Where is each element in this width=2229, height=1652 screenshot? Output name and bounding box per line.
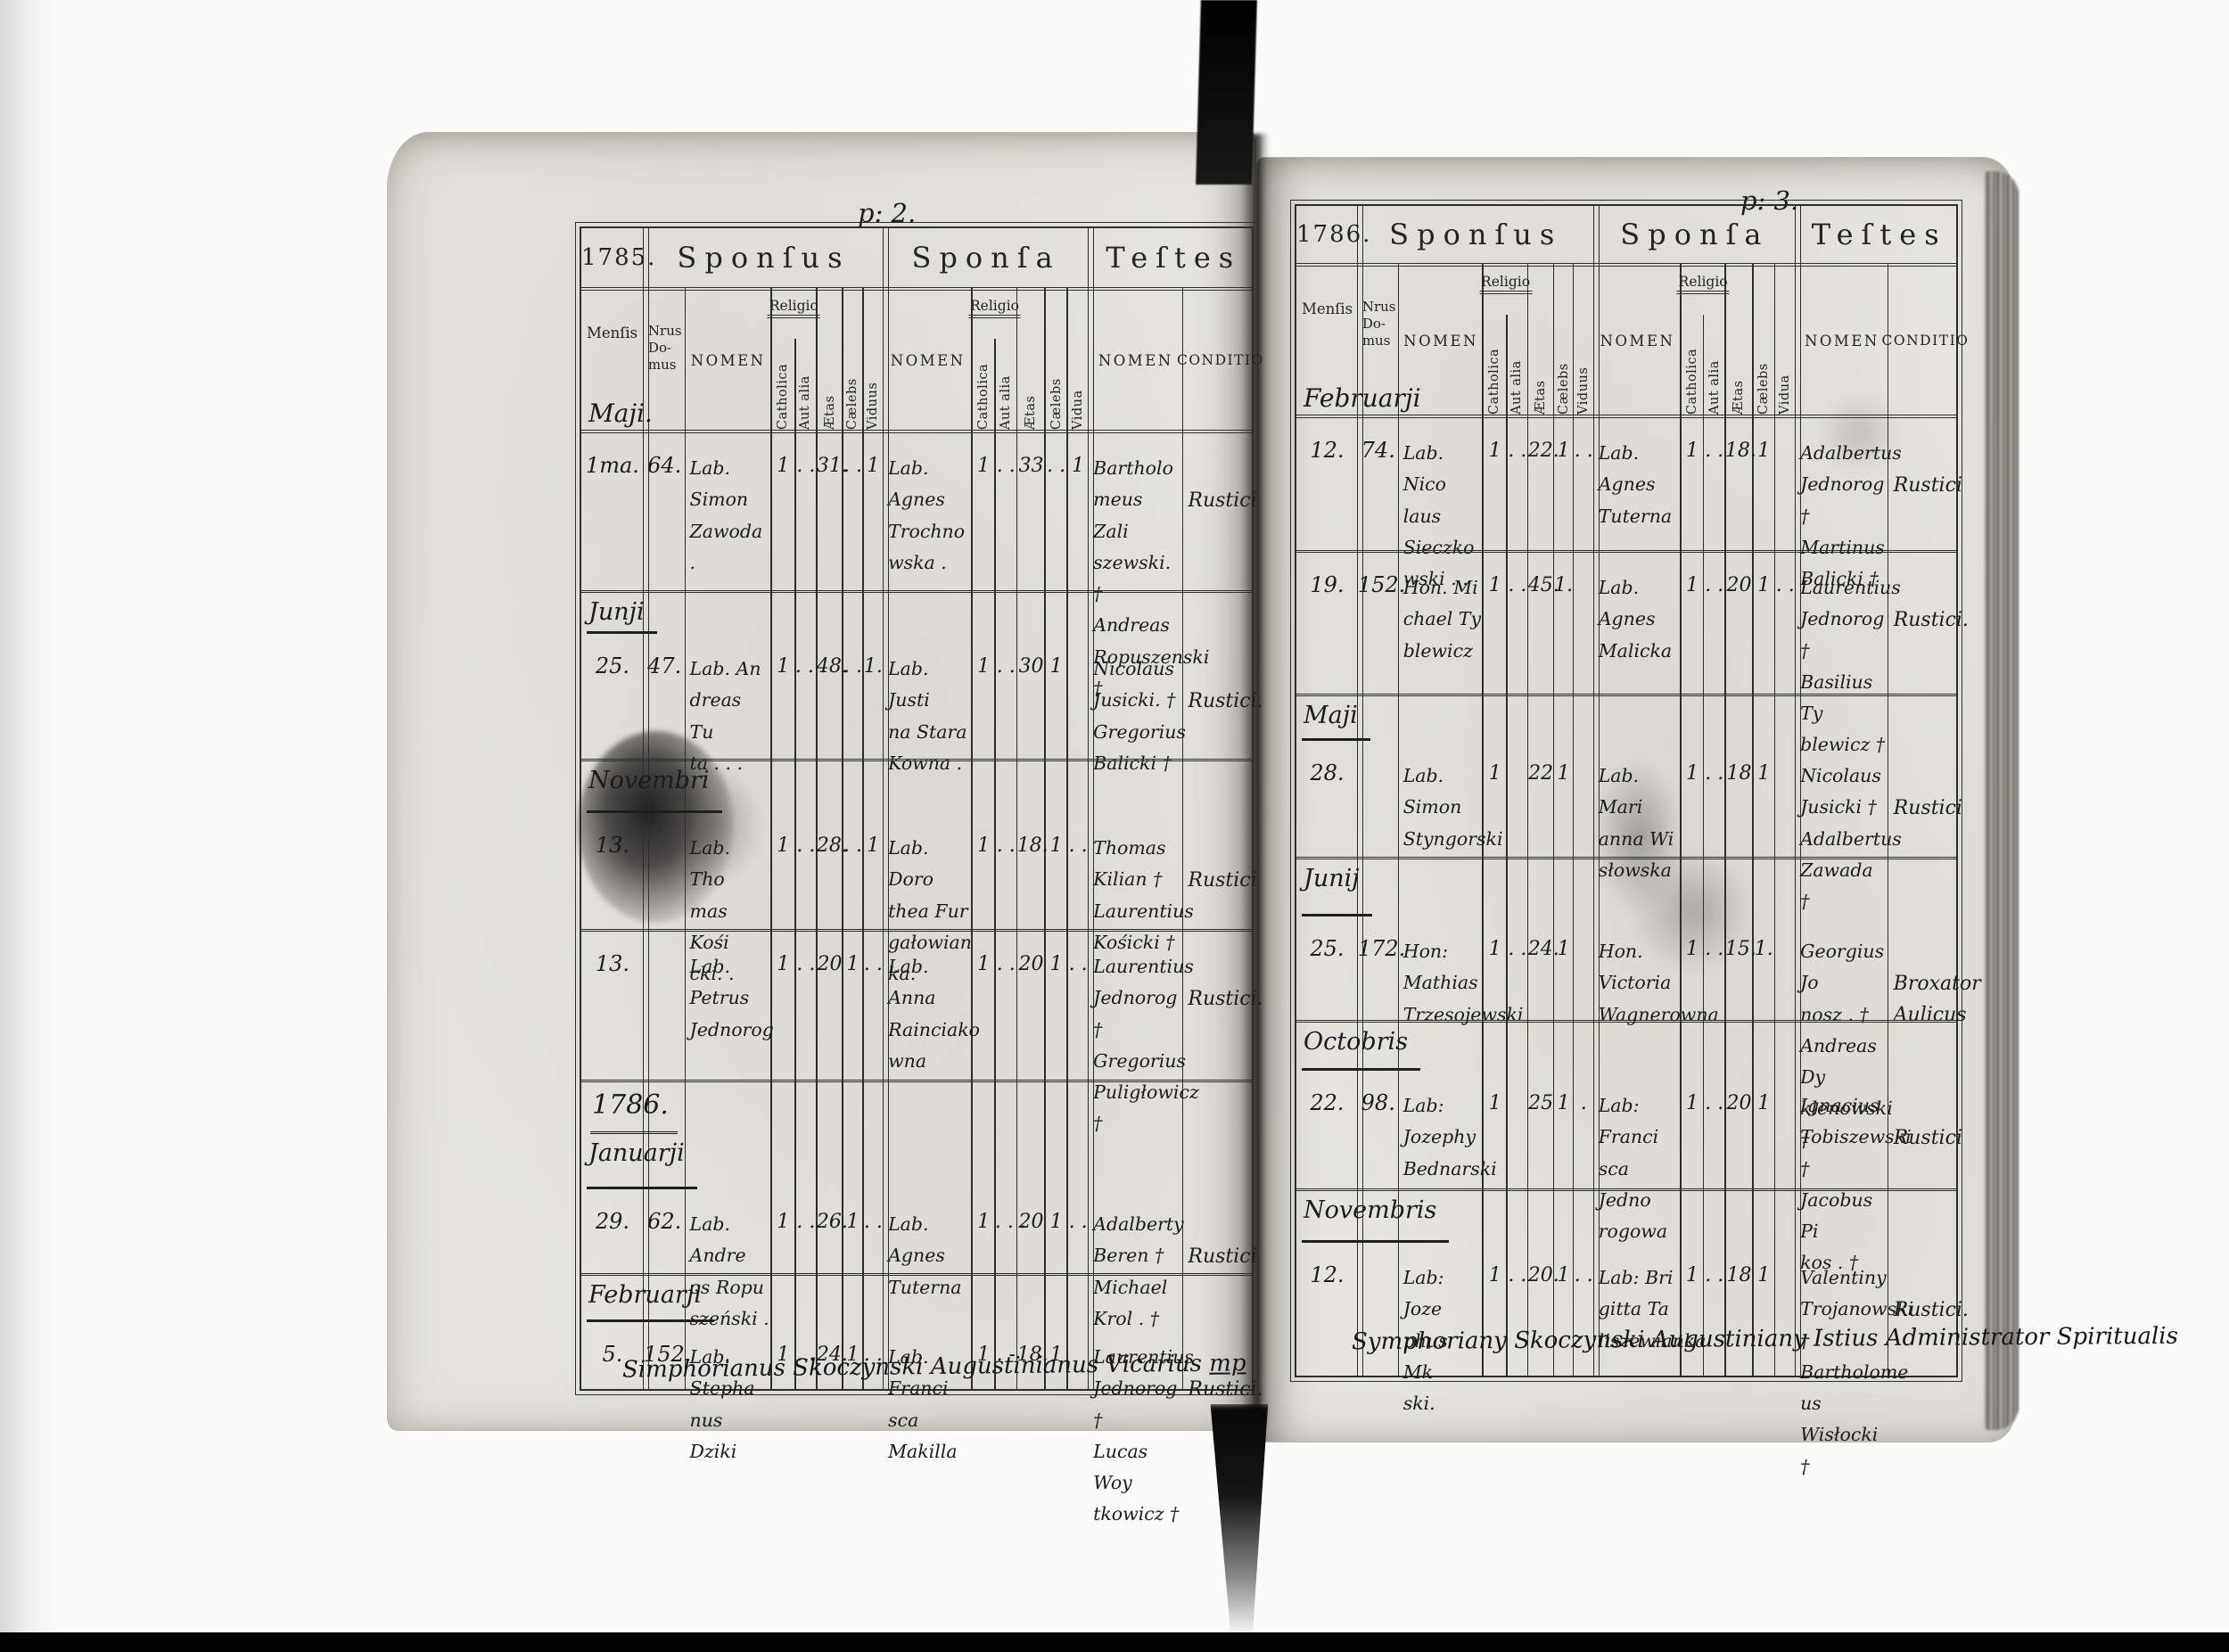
scanner-edge-shade — [0, 0, 62, 1640]
sponsa-catholica-mark: 1 — [972, 634, 995, 779]
column-header-row: Menſis Maji. Nrus Do- mus NOMEN Religio … — [581, 291, 1252, 433]
book-fore-edge — [1985, 171, 2019, 1430]
column-header-row: Menſis Februarji Nrus Do- mus NOMEN Reli… — [1296, 267, 1956, 418]
month-band: Junij — [1296, 857, 1956, 916]
month-label: Junij — [1302, 865, 1372, 916]
day-of-month: 12. — [1296, 1243, 1358, 1483]
header-nomen-testes: NOMEN — [1089, 291, 1182, 430]
header-conditio: CONDITIO — [1182, 291, 1258, 430]
header-religio-sponsa: Religio Catholica Aut alia — [1681, 267, 1725, 415]
priest-signature-right: Symphoriany Skoczynski Augustiniany Isti… — [1352, 1323, 2178, 1355]
marriage-record-row: 28. Lab. Simon Styngorski 1 22 1 Lab. Ma… — [1296, 741, 1956, 857]
aut-alia-label: Aut alia — [1509, 316, 1524, 415]
header-religio-sponsus: Religio Catholica Aut alia — [771, 291, 817, 430]
mensis-label: Menſis — [587, 325, 642, 341]
religio-label: Religio — [768, 298, 820, 318]
marriage-record-row: 12. 74. Lab. Nico laus Sieczko wski . . … — [1296, 418, 1956, 550]
section-sponsus: Sponſus — [644, 241, 884, 275]
sponsa-aut-alia-mark: . . — [1704, 1243, 1725, 1483]
header-month-handwritten: Maji. — [588, 399, 642, 428]
section-sponsa: Sponſa — [884, 241, 1089, 275]
month-band: Octobris — [1296, 1020, 1956, 1071]
month-band: Novembris — [1296, 1188, 1956, 1243]
month-label: Februarji — [587, 1281, 714, 1322]
religio-label: Religio — [1677, 274, 1730, 294]
header-caelebs-sponsus: Cælebs — [843, 291, 863, 430]
year-label-handwritten: 1786. — [590, 1089, 678, 1134]
marriage-record-row: 19. 152. Hon. Mi chael Ty blewicz 1 . . … — [1296, 550, 1956, 694]
header-month-handwritten: Februarji — [1304, 383, 1356, 413]
header-vidua-sponsa: Vidua — [1774, 267, 1796, 415]
witnesses-names: Nicolaus Jusicki. † Gregorius Balicki † — [1089, 634, 1182, 779]
scan-bottom-black-bar — [0, 1632, 2229, 1652]
header-caelebs-sponsus: Cælebs — [1554, 267, 1574, 415]
month-label: Novembri — [587, 767, 722, 813]
year-cell: 1786. — [1296, 221, 1358, 248]
header-nrus-domus: Nrus Do- mus — [1358, 267, 1399, 415]
sponsus-aut-alia-mark: . . . — [795, 634, 817, 779]
marriage-record-row: 29. 62. Lab. Andre os Ropu szeński . 1 .… — [581, 1189, 1252, 1273]
page-number-left: p: 2. — [858, 198, 916, 228]
sponsus-catholica-mark: 1 — [1483, 1243, 1507, 1483]
header-vidua-sponsa: Vidua — [1067, 291, 1089, 430]
sponsus-viduus-mark: 1. — [863, 634, 884, 779]
marriage-record-row: 13. Lab. Tho mas Kośi cki. . 1 . . 28. .… — [581, 813, 1252, 929]
header-caelebs-sponsa: Cælebs — [1045, 291, 1067, 430]
year-band: 1786. — [581, 1080, 1252, 1134]
sponsus-name: Lab. An dreas Tu ta . . . — [686, 634, 771, 779]
witnesses-names: Valentiny Trojanowski † Bartholome us Wi… — [1796, 1243, 1888, 1483]
sponsus-name: Lab: Joze phus Mk ski. — [1399, 1243, 1484, 1483]
scanned-marriage-register-spread: p: 2. p: 3. 1785. Sponſus Sponſa Teſtes … — [0, 0, 2229, 1652]
mensis-label: Menſis — [1302, 300, 1356, 317]
month-band: Januarji — [581, 1134, 1252, 1189]
header-aetas-sponsa: Ætas — [1017, 291, 1046, 430]
sponsa-age: 18 — [1725, 1243, 1753, 1483]
day-of-month: 5. — [581, 1322, 644, 1531]
section-testes: Teſtes — [1796, 218, 1962, 251]
sponsus-name: Lab. Stepha nus Dziki — [686, 1322, 771, 1531]
sponsus-age: 48. — [817, 634, 843, 779]
year-cell: 1785. — [581, 244, 644, 271]
religio-label: Religio — [1479, 274, 1532, 294]
sponsa-caelebs-mark: 1 — [1753, 1243, 1774, 1483]
month-band: Februarji — [581, 1273, 1252, 1322]
header-aetas-sponsa: Ætas — [1725, 267, 1753, 415]
sponsa-caelebs-mark: 1 — [1045, 634, 1067, 779]
header-nomen-sponsa: NOMEN — [1594, 267, 1682, 415]
month-label: Octobris — [1302, 1028, 1420, 1071]
register-table-1785: 1785. Sponſus Sponſa Teſtes Menſis Maji.… — [580, 226, 1254, 1391]
header-nomen-sponsa: NOMEN — [884, 291, 972, 430]
month-label: Maji — [1302, 702, 1370, 741]
sponsus-catholica-mark: 1 — [771, 634, 795, 779]
day-of-month: 25. — [581, 634, 644, 779]
header-nrus-domus: Nrus Do- mus — [644, 291, 686, 430]
header-aetas-sponsus: Ætas — [1528, 267, 1554, 415]
header-conditio: CONDITIO — [1888, 267, 1963, 415]
conditio-value: Rustici. — [1182, 634, 1258, 779]
sponsus-viduus-mark: . . — [1574, 1243, 1594, 1483]
records-right: 12. 74. Lab. Nico laus Sieczko wski . . … — [1296, 418, 1956, 1368]
marriage-record-row: 1ma. 64. Lab. Simon Zawoda . 1 . . 31. .… — [581, 433, 1252, 590]
aut-alia-label: Aut alia — [1707, 316, 1722, 415]
sponsus-aut-alia-mark: . . — [1507, 1243, 1528, 1483]
sponsa-aut-alia-mark: . . — [995, 634, 1017, 779]
bookmark-ribbon-top — [1196, 0, 1257, 185]
month-band: Maji — [1296, 694, 1956, 741]
header-religio-sponsus: Religio Catholica Aut alia — [1483, 267, 1527, 415]
sponsa-catholica-mark: 1 — [1681, 1243, 1703, 1483]
sponsa-age: 30 — [1017, 634, 1046, 779]
title-row: 1786. Sponſus Sponſa Teſtes — [1296, 206, 1956, 267]
header-nomen-sponsus: NOMEN — [686, 291, 771, 430]
header-nomen-sponsus: NOMEN — [1399, 267, 1484, 415]
religio-label: Religio — [968, 298, 1021, 318]
header-mensis: Menſis Februarji — [1296, 267, 1358, 415]
sponsa-vidua-mark — [1774, 1243, 1796, 1483]
house-number — [1358, 1243, 1399, 1483]
header-religio-sponsa: Religio Catholica Aut alia — [972, 291, 1016, 430]
register-table-1786: 1786. Sponſus Sponſa Teſtes Menſis Febru… — [1295, 204, 1958, 1377]
header-viduus-sponsus: Viduus — [863, 291, 884, 430]
sponsus-caelebs-mark: . . — [843, 634, 863, 779]
month-band: Novembri — [581, 759, 1252, 813]
section-testes: Teſtes — [1089, 241, 1258, 275]
marriage-record-row: 13. Lab. Petrus Jednorog 1 . . 20 1 . . … — [581, 929, 1252, 1080]
sponsus-aut-alia-mark: . . — [795, 1322, 817, 1531]
sponsa-name: Lab: Bri gitta Ta liszewianka — [1594, 1243, 1682, 1483]
sponsus-age: 20. — [1528, 1243, 1554, 1483]
catholica-label: Catholica — [1487, 316, 1501, 415]
house-number: 47. — [644, 634, 686, 779]
house-number: 152. — [644, 1322, 686, 1531]
conditio-value: Rustici. — [1888, 1243, 1963, 1483]
sponsa-vidua-mark — [1067, 634, 1089, 779]
marriage-record-row: 25. 172. Hon: Mathias Trzesojewski 1 . .… — [1296, 916, 1956, 1020]
month-band: Junji — [581, 590, 1252, 634]
month-label: Junji — [587, 598, 657, 634]
records-left: 1ma. 64. Lab. Simon Zawoda . 1 . . 31. .… — [581, 433, 1252, 1402]
header-nomen-testes: NOMEN — [1796, 267, 1888, 415]
aut-alia-label: Aut alia — [999, 332, 1013, 430]
catholica-label: Catholica — [976, 332, 991, 430]
month-label: Novembris — [1302, 1196, 1449, 1243]
title-row: 1785. Sponſus Sponſa Teſtes — [581, 228, 1252, 291]
sponsus-catholica-mark: 1 — [771, 1322, 795, 1531]
sponsus-age: 24. — [817, 1322, 843, 1531]
header-aetas-sponsus: Ætas — [817, 291, 843, 430]
sponsa-name: Lab. Justi na Stara Kowna . — [884, 634, 972, 779]
section-sponsus: Sponſus — [1358, 218, 1594, 251]
header-viduus-sponsus: Viduus — [1574, 267, 1594, 415]
month-label: Januarji — [587, 1139, 697, 1189]
section-sponsa: Sponſa — [1594, 218, 1796, 251]
aut-alia-label: Aut alia — [798, 332, 812, 430]
header-caelebs-sponsa: Cælebs — [1753, 267, 1774, 415]
marriage-record-row: 25. 47. Lab. An dreas Tu ta . . . 1 . . … — [581, 634, 1252, 759]
catholica-label: Catholica — [1685, 316, 1699, 415]
sponsus-caelebs-mark: 1 — [1554, 1243, 1574, 1483]
header-mensis: Menſis Maji. — [581, 291, 644, 430]
catholica-label: Catholica — [776, 332, 790, 430]
marriage-record-row: 22. 98. Lab: Jozephy Bednarski 1 25 1 . … — [1296, 1071, 1956, 1188]
